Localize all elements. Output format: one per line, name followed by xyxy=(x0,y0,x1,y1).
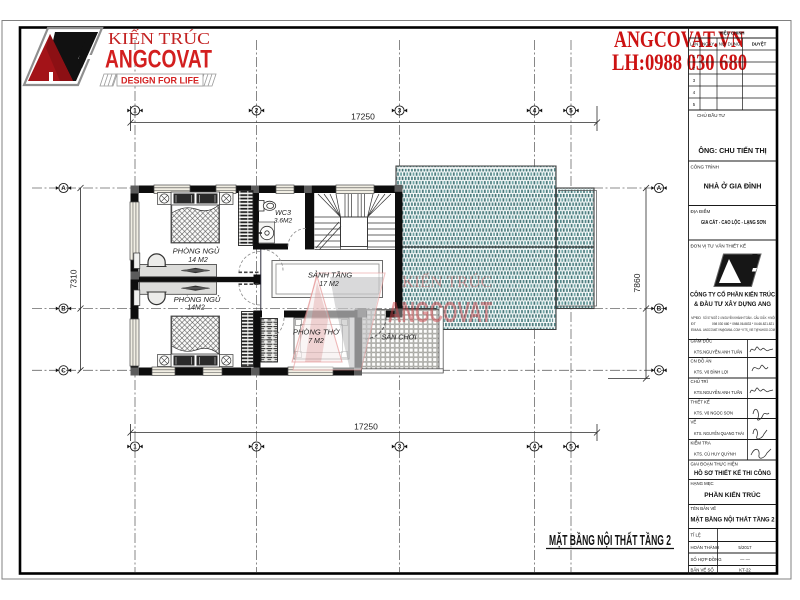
svg-text:7 M2: 7 M2 xyxy=(308,338,324,345)
svg-text:HỒ SƠ THIẾT KẾ THI CÔNG: HỒ SƠ THIẾT KẾ THI CÔNG xyxy=(694,469,771,477)
svg-text:5: 5 xyxy=(569,108,573,115)
svg-text:3: 3 xyxy=(398,108,402,115)
svg-text:GIAI ĐOẠN THỰC HIỆN: GIAI ĐOẠN THỰC HIỆN xyxy=(691,462,738,467)
svg-text:GIÁM ĐỐC: GIÁM ĐỐC xyxy=(691,339,713,344)
svg-text:LH:0988 030 680: LH:0988 030 680 xyxy=(612,50,747,75)
svg-text:ĐỊA ĐIỂM: ĐỊA ĐIỂM xyxy=(691,208,711,214)
svg-text:SỐ 57 NGÕ 2 4 NGUYỄN KHÁNH T: SỐ 57 NGÕ 2 4 NGUYỄN KHÁNH TOÀN - CẦU GI… xyxy=(703,315,775,320)
svg-text:LẦN: LẦN xyxy=(690,42,698,47)
svg-text:— —: — — xyxy=(740,557,750,562)
svg-text:B: B xyxy=(657,306,662,313)
svg-text:MẶT BẦNG NỘI THẤT TẦNG 2: MẶT BẦNG NỘI THẤT TẦNG 2 xyxy=(691,516,776,524)
svg-text:5: 5 xyxy=(569,444,573,451)
svg-text:C: C xyxy=(657,368,662,375)
svg-text:EMAIL: EMAIL xyxy=(691,328,702,332)
svg-text:KTS. Vũ NGỌC SƠN: KTS. Vũ NGỌC SƠN xyxy=(694,411,733,416)
svg-text:PHÒNG NGỦ: PHÒNG NGỦ xyxy=(173,247,220,256)
svg-text:A: A xyxy=(61,185,66,192)
svg-text:HIỆU CHỉNH: HIỆU CHỉNH xyxy=(719,31,744,36)
svg-text:ĐT: ĐT xyxy=(691,322,697,326)
svg-text:ÔNG: CHU TIẾN THỊ: ÔNG: CHU TIẾN THỊ xyxy=(698,145,766,155)
svg-text:KTS.NGUYỄN ANH TUẤN: KTS.NGUYỄN ANH TUẤN xyxy=(694,390,742,395)
svg-text:VPĐD: VPĐD xyxy=(691,316,701,320)
svg-text:17 M2: 17 M2 xyxy=(319,281,339,288)
svg-text:THIẾT KẾ: THIẾT KẾ xyxy=(691,400,710,405)
svg-text:KT-22: KT-22 xyxy=(739,568,751,573)
svg-text:ANGCOVAT: ANGCOVAT xyxy=(388,297,492,329)
svg-text:KTS. CÙ HUY QUỲNH: KTS. CÙ HUY QUỲNH xyxy=(694,452,736,457)
svg-text:PHÒNG NGỦ: PHÒNG NGỦ xyxy=(174,295,221,304)
svg-text:14M2: 14M2 xyxy=(187,305,205,312)
svg-text:17250: 17250 xyxy=(354,422,378,432)
svg-text:WC3: WC3 xyxy=(275,208,291,217)
svg-text:SẢNH TẦNG: SẢNH TẦNG xyxy=(308,270,352,280)
svg-text:KIẾN TRÚC: KIẾN TRÚC xyxy=(402,272,492,291)
svg-text:DUYỆT: DUYỆT xyxy=(752,42,767,47)
svg-text:1: 1 xyxy=(133,108,137,115)
svg-text:NGÀY,: NGÀY, xyxy=(702,42,715,47)
svg-text:BẢN VẾ SỐ: BẢN VẾ SỐ xyxy=(691,568,715,573)
svg-text:HẠNG MẸC: HẠNG MẸC xyxy=(691,481,714,486)
svg-text:KIỂM TRA: KIỂM TRA xyxy=(691,441,711,446)
svg-text:ANGCOVAT.VN@GMAIL.COM * KTS_VI: ANGCOVAT.VN@GMAIL.COM * KTS_VIE T@YAHOO.… xyxy=(703,328,775,332)
svg-text:CÔNG TRÌNH: CÔNG TRÌNH xyxy=(691,164,719,170)
svg-text:NHÀ Ở GIA ĐÌNH: NHÀ Ở GIA ĐÌNH xyxy=(704,182,762,191)
svg-text:SỐ HỢP ĐỒNG: SỐ HỢP ĐỒNG xyxy=(691,557,723,562)
svg-text:GIA CÁT - CAO LỘC - LẠNG SƠN: GIA CÁT - CAO LỘC - LẠNG SƠN xyxy=(701,218,766,226)
svg-text:A: A xyxy=(657,185,662,192)
svg-text:TÊN BẢN VẾ: TÊN BẢN VẾ xyxy=(691,506,717,511)
svg-text:4: 4 xyxy=(533,108,537,115)
svg-text:B: B xyxy=(61,306,66,313)
svg-text:3.6M2: 3.6M2 xyxy=(274,218,293,225)
svg-text:CHỦ ĐẦU TƯ: CHỦ ĐẦU TƯ xyxy=(697,112,725,118)
svg-text:TỈ LỆ: TỈ LỆ xyxy=(691,533,701,538)
svg-text:3: 3 xyxy=(398,444,402,451)
svg-text:7860: 7860 xyxy=(632,273,642,292)
svg-text:14 M2: 14 M2 xyxy=(188,257,208,264)
svg-text:2: 2 xyxy=(255,444,259,451)
svg-text:CHỦ TRÌ: CHỦ TRÌ xyxy=(691,379,708,384)
svg-text:C: C xyxy=(61,368,66,375)
svg-text:ANGCOVAT: ANGCOVAT xyxy=(105,46,212,74)
svg-text:VẾ: VẾ xyxy=(691,420,697,425)
svg-text:PHÒNG THỜ: PHÒNG THỜ xyxy=(293,328,340,337)
svg-text:2: 2 xyxy=(255,108,259,115)
svg-text:ĐƠN VỊ TƯ VẤN THIẾT KẾ: ĐƠN VỊ TƯ VẤN THIẾT KẾ xyxy=(691,243,746,249)
svg-text:KTS.NGUYỄN ANH TUẤN: KTS.NGUYỄN ANH TUẤN xyxy=(694,350,742,355)
svg-text:HOÀN THÀNH: HOÀN THÀNH xyxy=(691,545,719,550)
svg-text:7310: 7310 xyxy=(69,269,79,288)
svg-text:SÂN CHƠI: SÂN CHƠI xyxy=(382,333,417,342)
svg-text:NỘI DUNG: NỘI DUNG xyxy=(719,42,741,47)
svg-text:CN ĐỒ ÁN: CN ĐỒ ÁN xyxy=(691,359,712,364)
svg-text:098 030 680 * 0988.06.8833 * 0: 098 030 680 * 0988.06.8833 * 04.66.821.8… xyxy=(712,322,774,326)
svg-text:KTS. Vũ ĐÌNH LỢI: KTS. Vũ ĐÌNH LỢI xyxy=(694,370,728,375)
svg-text:17250: 17250 xyxy=(351,112,375,122)
svg-text:4: 4 xyxy=(533,444,537,451)
svg-text:1: 1 xyxy=(133,444,137,451)
svg-text:DESIGN FOR LIFE: DESIGN FOR LIFE xyxy=(121,76,199,86)
svg-text:5/2017: 5/2017 xyxy=(738,545,752,550)
svg-text:MẶT BẦNG NỘI THẤT TẦNG 2: MẶT BẦNG NỘI THẤT TẦNG 2 xyxy=(549,531,671,549)
svg-text:KTS. NGUYỄN QUANG THÁI: KTS. NGUYỄN QUANG THÁI xyxy=(694,431,744,436)
